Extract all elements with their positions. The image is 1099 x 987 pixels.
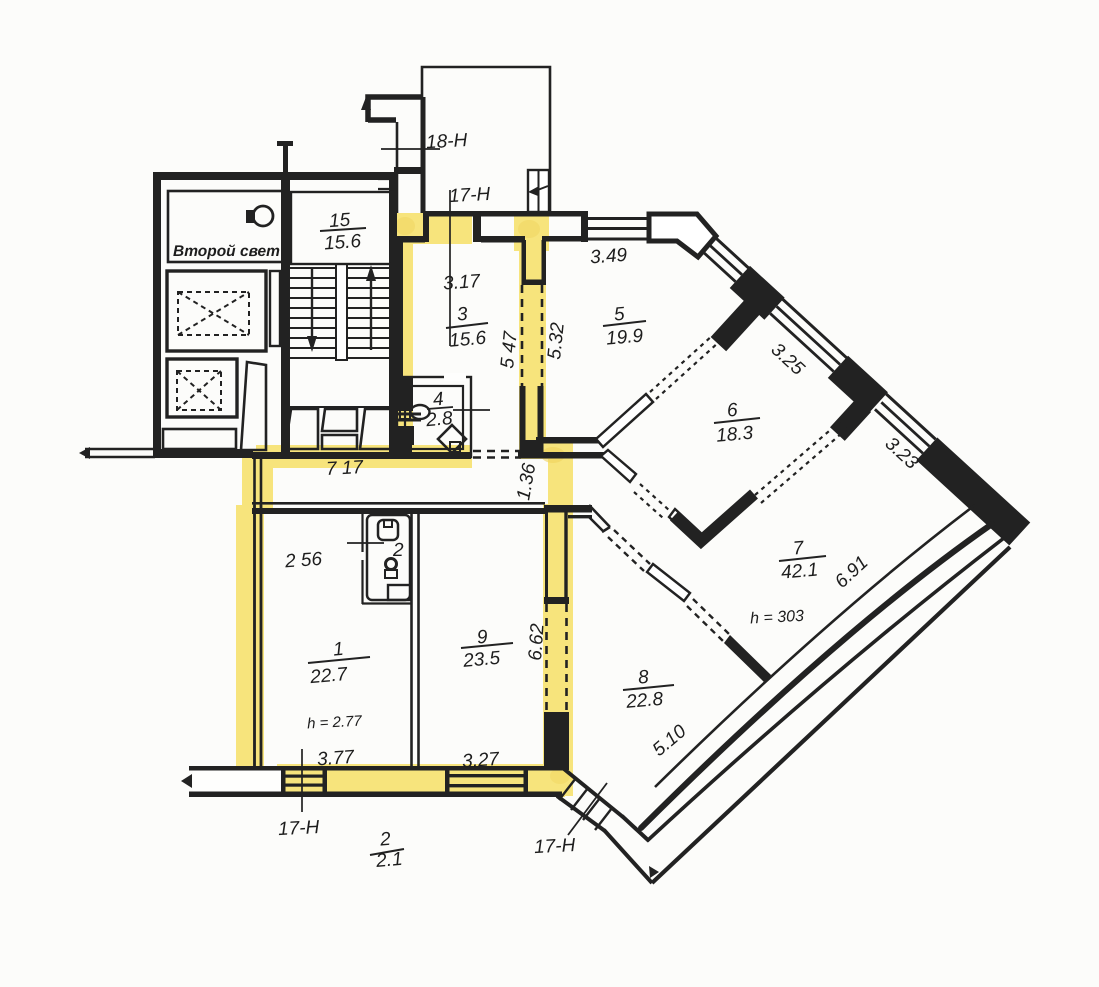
svg-text:1: 1 [332,639,344,661]
svg-text:3.49: 3.49 [589,245,628,269]
svg-text:17-Н: 17-Н [278,817,321,840]
svg-text:19.9: 19.9 [605,325,644,349]
svg-text:17-Н: 17-Н [534,835,577,858]
svg-text:18.3: 18.3 [715,423,754,447]
svg-text:42.1: 42.1 [780,559,819,583]
svg-text:6.62: 6.62 [525,623,549,662]
svg-text:5.32: 5.32 [544,321,569,360]
svg-text:3.27: 3.27 [461,749,501,773]
svg-text:Второй свет: Второй свет [173,243,280,260]
svg-text:2: 2 [392,540,404,561]
svg-text:2: 2 [378,829,392,851]
svg-text:2 56: 2 56 [283,549,323,573]
svg-text:18-Н: 18-Н [426,130,469,153]
svg-text:h = 2.77: h = 2.77 [307,713,363,733]
svg-text:5 47: 5 47 [497,329,522,369]
svg-text:17-Н: 17-Н [449,184,492,207]
svg-text:22.7: 22.7 [308,664,349,688]
svg-text:3.77: 3.77 [316,747,356,771]
svg-text:22.8: 22.8 [624,689,664,713]
svg-text:2.1: 2.1 [374,849,403,872]
svg-text:h = 303: h = 303 [750,608,805,628]
svg-text:7 17: 7 17 [326,457,365,480]
svg-text:3.17: 3.17 [442,271,482,295]
svg-text:23.5: 23.5 [461,648,501,672]
svg-text:15.6: 15.6 [448,328,487,352]
svg-text:15.6: 15.6 [323,231,362,255]
svg-text:2.8: 2.8 [424,408,454,431]
